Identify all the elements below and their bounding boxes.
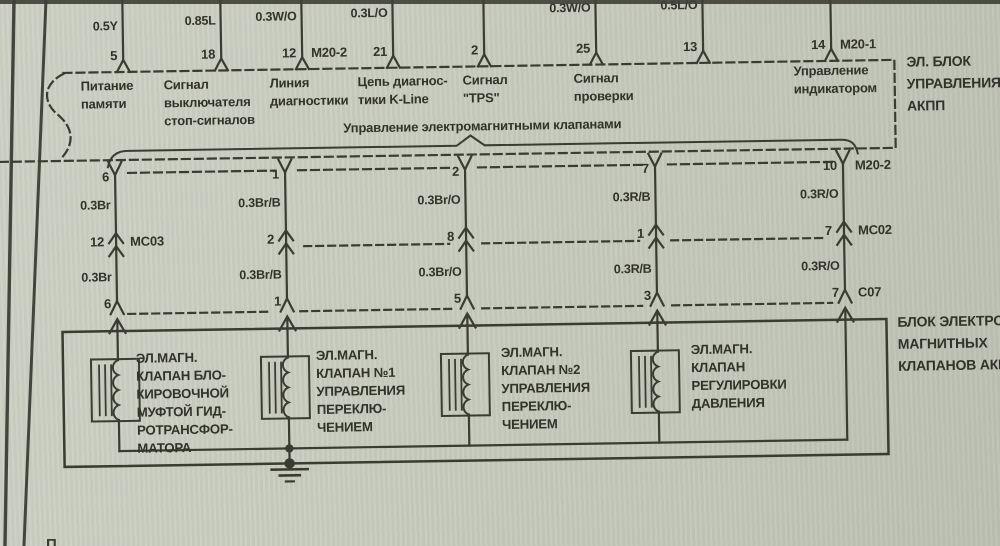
signal-label: памяти <box>81 95 127 114</box>
wire-gauge-label: 0.3Br <box>32 270 112 285</box>
valve-label: ДАВЛЕНИЯ <box>692 394 765 413</box>
signal-label: стоп-сигналов <box>164 111 255 130</box>
pin-number: 5 <box>421 291 461 307</box>
pin-number: 3 <box>611 288 651 304</box>
pin-number: 6 <box>69 169 109 185</box>
pin-number: 18 <box>175 47 215 63</box>
signal-label: "TPS" <box>463 89 500 108</box>
wire-gauge-label: 0.85L <box>141 14 216 29</box>
signal-label: диагностики <box>270 91 349 110</box>
signal-label: Сигнал <box>462 71 507 90</box>
valve-label: УПРАВЛЕНИЯ <box>316 382 405 401</box>
wire-gauge-label: 0.3Br/B <box>202 268 282 283</box>
connector-fork-icons <box>111 290 852 315</box>
pin-number: 25 <box>550 41 590 57</box>
valve-label: ЭЛ.МАГН. <box>691 340 753 359</box>
connector-code: M20-1 <box>840 36 876 52</box>
pin-number: 8 <box>414 229 454 245</box>
ecu-block-name: АКПП <box>907 94 945 117</box>
wire-gauge-label: 0.3R/O <box>758 187 838 202</box>
valve-label: МУФТОЙ ГИД- <box>137 402 226 421</box>
valve-label: РОТРАНСФОР- <box>137 420 233 440</box>
wire-gauge-label: 0.3Br/B <box>200 196 280 211</box>
valve-label: КЛАПАН №1 <box>316 364 395 383</box>
connector-code: MC03 <box>130 233 164 249</box>
connector-code: MC02 <box>858 222 892 238</box>
pin-number: 13 <box>657 39 697 55</box>
valve-label: ПЕРЕКЛЮ- <box>502 397 572 416</box>
wire-gauge-label: 0.3Br/O <box>382 265 462 280</box>
valve-label: ПЕРЕКЛЮ- <box>317 400 387 419</box>
ecu-block-name: УПРАВЛЕНИЯ <box>907 71 1000 94</box>
mid-connector-dashed <box>304 238 825 246</box>
valve-label: МАТОРА <box>137 439 191 458</box>
signal-label: индикатором <box>794 79 877 98</box>
signal-label: Сигнал <box>163 76 208 95</box>
connector-code: C07 <box>858 284 881 299</box>
valve-label: УПРАВЛЕНИЯ <box>501 379 590 398</box>
valve-label: ЭЛ.МАГН. <box>501 343 563 362</box>
wiring-diagram: 0.5Y 0.85L 0.3W/O 0.3L/O 0.3W/O 0.5L/O 5… <box>0 0 1000 546</box>
mid-connector-chevrons <box>109 222 851 257</box>
pin-number: 1 <box>241 294 281 310</box>
wire-gauge-label: 0.3R/B <box>570 190 650 205</box>
ecu-block-name: ЭЛ. БЛОК <box>906 50 971 73</box>
wire-gauge-label: 0.3L/O <box>302 6 387 21</box>
pin-number: 7 <box>792 223 832 239</box>
pin-number: 12 <box>64 234 104 250</box>
pin-number: 2 <box>438 42 478 58</box>
solenoid-block-name: КЛАПАНОВ АКПП <box>898 353 1000 377</box>
valve-label: ЧЕНИЕМ <box>502 415 558 434</box>
scan-top-edge <box>0 0 1000 4</box>
pin-number: 7 <box>609 161 649 177</box>
ground-icon <box>272 469 308 476</box>
valve-label: РЕГУЛИРОВКИ <box>691 376 787 395</box>
scanned-page: 0.5Y 0.85L 0.3W/O 0.3L/O 0.3W/O 0.5L/O 5… <box>0 0 1000 546</box>
valve-label: КИРОВОЧНОЙ <box>136 384 229 403</box>
pin-number: 5 <box>77 48 117 64</box>
signal-label: Управление <box>793 61 868 80</box>
wire-gauge-label: 0.5Y <box>48 19 118 34</box>
junction-dot <box>284 458 295 469</box>
wire-gauge-label: 0.3R/O <box>759 259 839 274</box>
valve-label: ЭЛ.МАГН. <box>316 346 378 365</box>
signal-label: Цепь диагнос- <box>357 72 447 91</box>
wire-gauge-label: 0.3R/B <box>571 262 651 277</box>
pin-number: 6 <box>71 296 111 312</box>
valve-label: КЛАПАН БЛО- <box>136 366 226 385</box>
cut-off-text-fragment: П <box>46 536 57 546</box>
pin-number: 2 <box>419 164 459 180</box>
valve-label: ЧЕНИЕМ <box>317 418 373 437</box>
pin-number: 21 <box>347 44 387 60</box>
valve-label: КЛАПАН <box>691 358 745 377</box>
pin-number: 12 <box>256 45 296 61</box>
pin-number: 2 <box>234 232 274 248</box>
coil-winding-icon <box>113 360 119 420</box>
signal-label: Сигнал <box>573 69 618 88</box>
signal-label: Питание <box>81 77 134 96</box>
connector-code: M20-2 <box>311 44 347 60</box>
valve-label: КЛАПАН №2 <box>501 361 580 380</box>
solenoid-block-name: БЛОК ЭЛЕКТРО <box>897 309 1000 333</box>
pin-number: 7 <box>799 285 839 301</box>
pin-number: 1 <box>239 167 279 183</box>
wire-gauge-label: 0.3W/O <box>211 9 296 24</box>
signal-label: проверки <box>574 87 634 106</box>
junction-dot <box>285 444 294 453</box>
pin-number: 14 <box>785 37 825 53</box>
pin-number: 10 <box>797 158 837 174</box>
connector-code: M20-2 <box>855 157 891 173</box>
block-connector-dashed <box>128 303 832 314</box>
signal-label: Линия <box>269 74 309 93</box>
wire-gauge-label: 0.3Br <box>30 198 110 213</box>
valve-label: ЭЛ.МАГН. <box>136 349 198 368</box>
wire-gauge-label: 0.3Br/O <box>380 193 460 208</box>
solenoid-block-name: МАГНИТНЫХ <box>898 331 988 354</box>
signal-label: тики K-Line <box>358 90 429 109</box>
pin-number: 1 <box>604 226 644 242</box>
signal-label: выключателя <box>164 93 251 112</box>
